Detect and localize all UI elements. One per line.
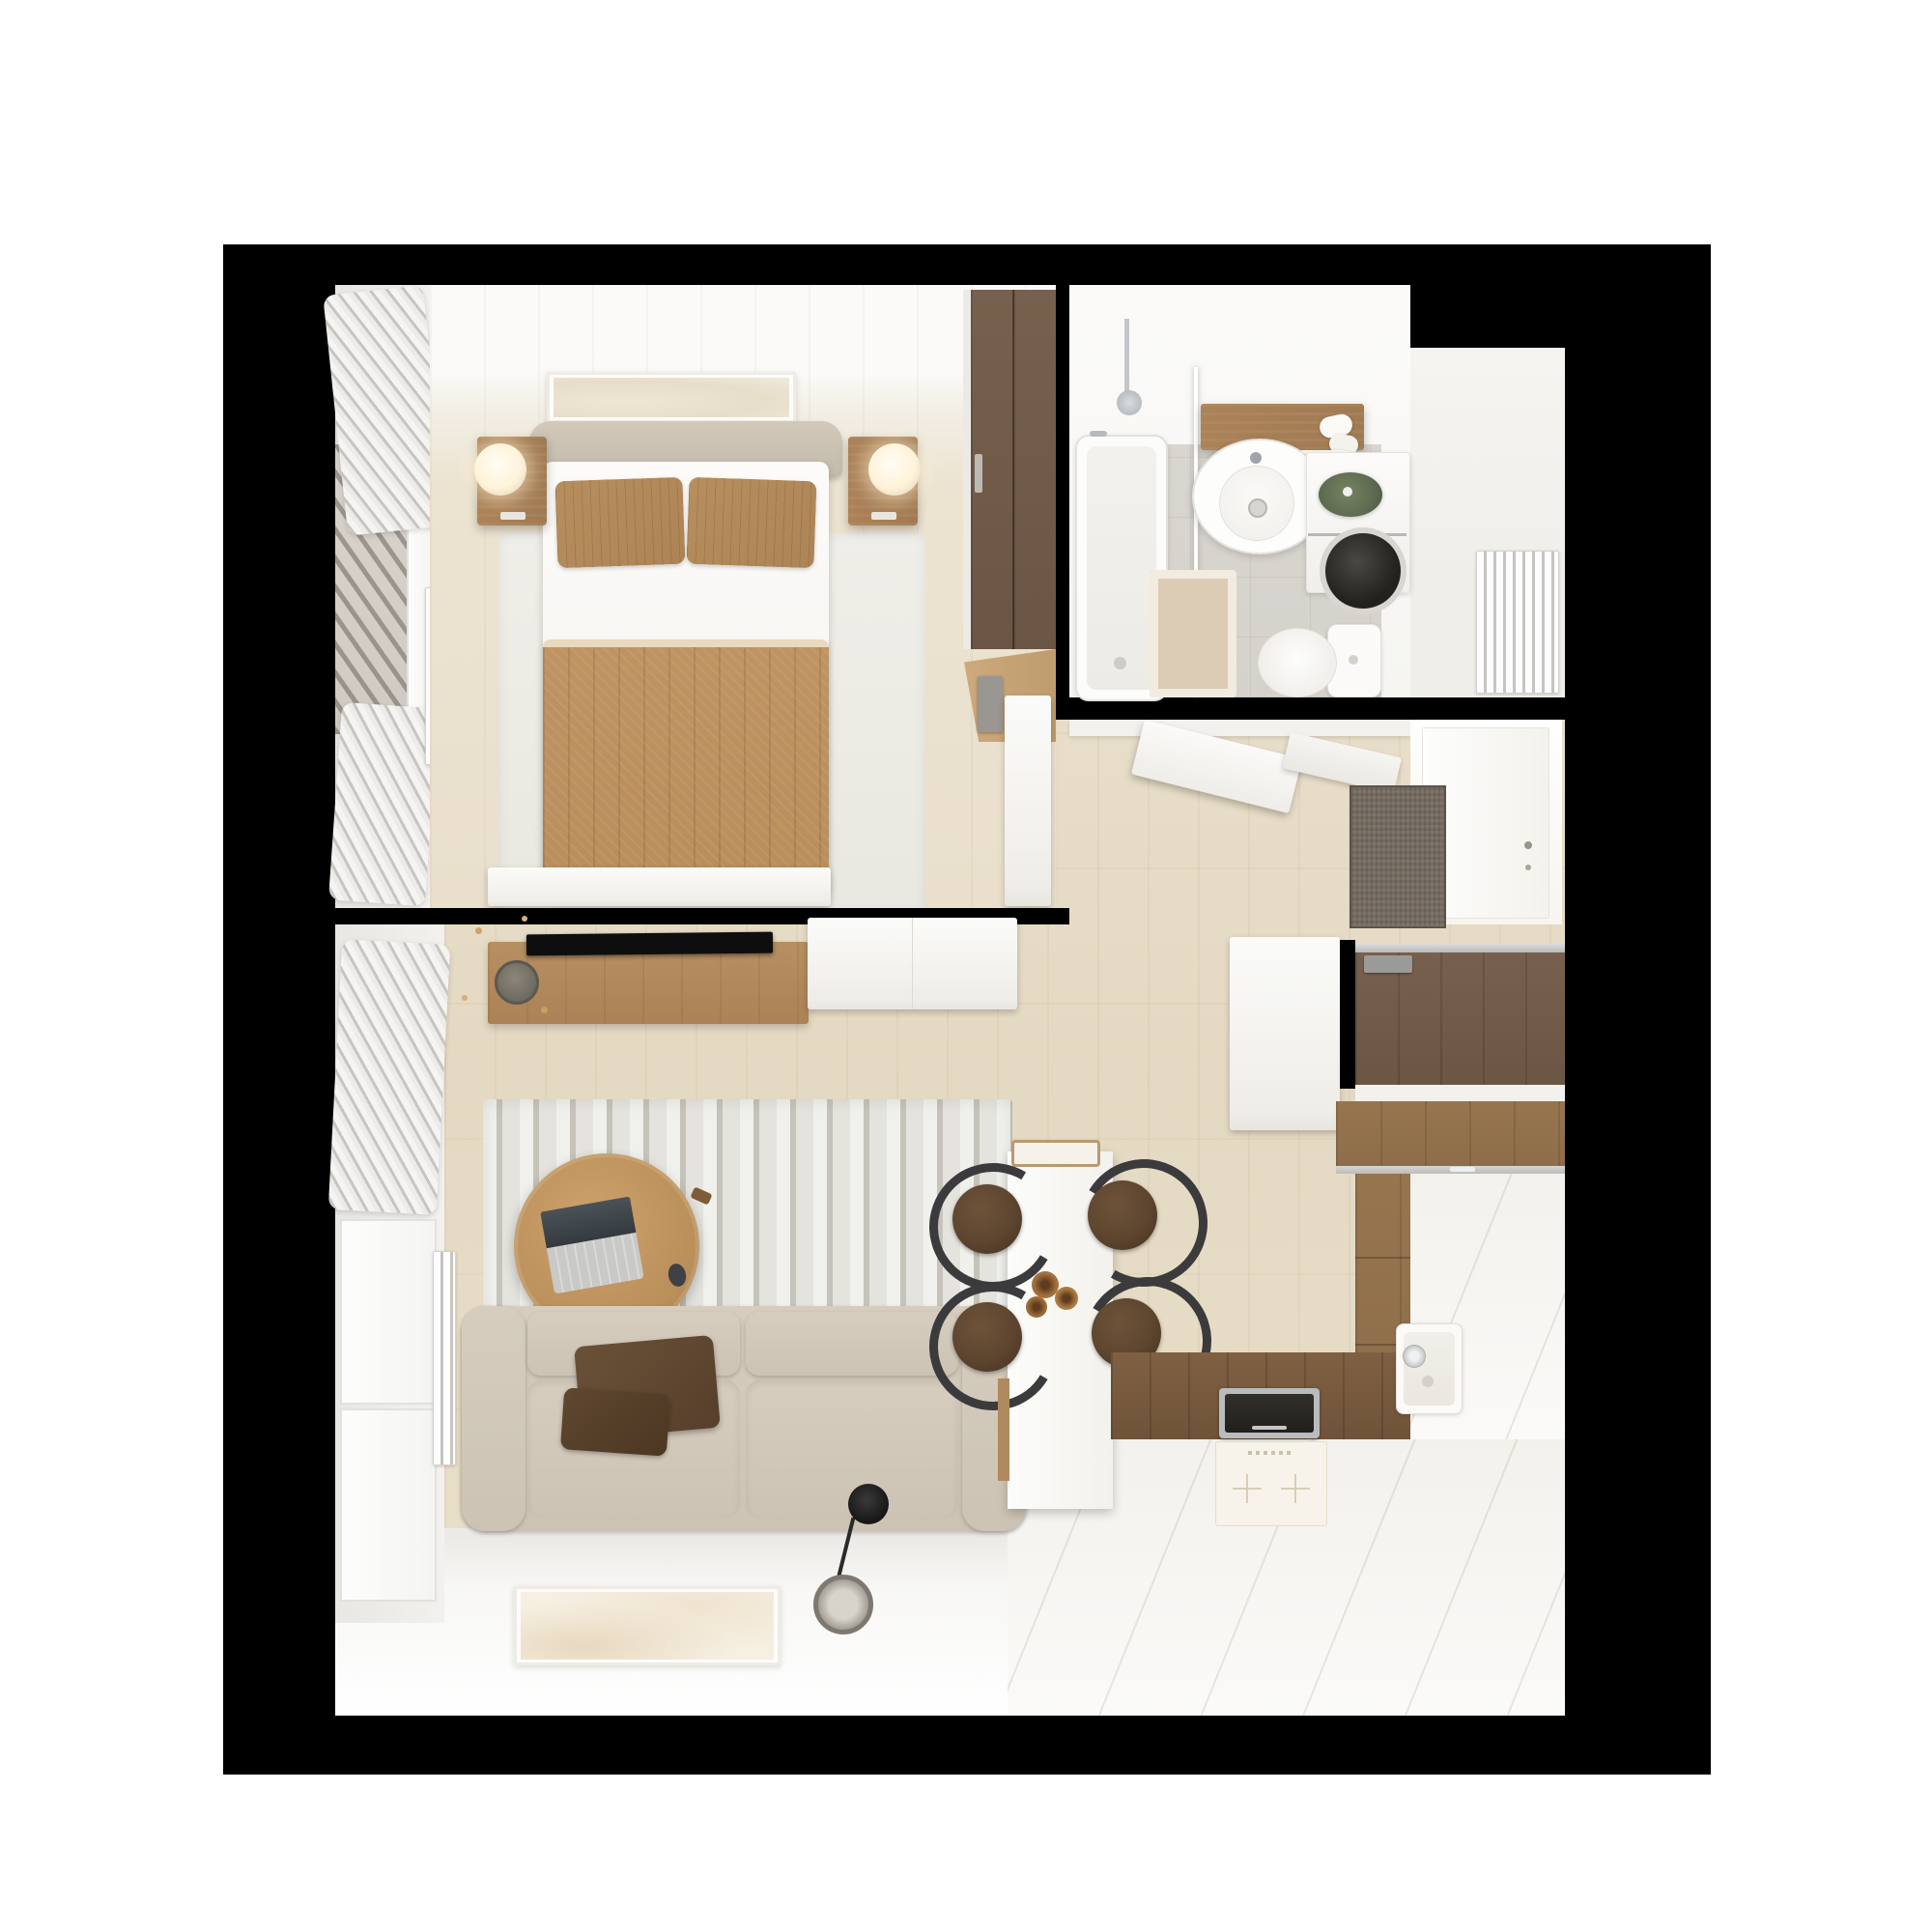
washer-door <box>1320 527 1406 614</box>
shower-tap <box>1090 431 1107 437</box>
leaning-artwork-image <box>521 1592 774 1660</box>
shower-head <box>1117 390 1142 415</box>
hall-door-frame-band <box>1069 720 1410 736</box>
vase <box>495 960 539 1005</box>
living-sideboard <box>808 918 1017 1009</box>
bedroom-wall-art <box>547 372 796 423</box>
wardrobe-shelf-handle <box>978 676 1003 732</box>
hob-controls <box>1252 1426 1287 1430</box>
entry-wardrobe <box>1355 952 1565 1085</box>
kitchen-worktop-left-strip <box>998 1378 1009 1481</box>
chair-left-bottom <box>952 1302 1022 1372</box>
serving-tray <box>1011 1140 1100 1167</box>
bedroom-low-dresser <box>488 867 831 906</box>
vase-sprig-2 <box>522 916 527 922</box>
bed-duvet <box>543 639 829 895</box>
wardrobe-handle <box>975 454 982 493</box>
cooktop-label-dots <box>1248 1451 1294 1455</box>
cooktop-cross-2 <box>1281 1474 1310 1503</box>
living-radiator <box>433 1251 456 1465</box>
sink-tap <box>1250 452 1262 464</box>
vase-sprig-3 <box>541 1007 548 1013</box>
living-window-glass-1 <box>340 1219 437 1405</box>
bed-pillow-right <box>686 477 816 569</box>
throw-pillow <box>560 1387 670 1457</box>
bedroom-curtain-bottom <box>328 702 439 906</box>
bathtub-basin <box>1087 446 1156 690</box>
sphere-lamp-right <box>868 443 921 496</box>
sphere-lamp-left <box>474 443 526 496</box>
kitchen-faucet <box>1403 1345 1426 1368</box>
bedroom-wall-art-image <box>554 378 789 417</box>
sink-drain <box>1248 498 1267 518</box>
entry-wardrobe-gap <box>1355 1085 1565 1101</box>
induction-hob <box>1219 1388 1320 1438</box>
tall-cabinet-seam-1 <box>1355 1257 1410 1259</box>
cooktop-front-panel <box>1215 1441 1327 1526</box>
bath-mat <box>1150 570 1236 697</box>
front-door-lock <box>1525 865 1531 870</box>
bedroom-open-door-leaf <box>1005 696 1051 906</box>
sink-basin <box>1404 1332 1455 1406</box>
bathtub-drain <box>1114 657 1126 669</box>
sofa-back-cushion-right <box>746 1312 958 1376</box>
chair-left-top <box>952 1184 1022 1254</box>
toilet-bowl <box>1258 628 1337 697</box>
floor-plan-screenshot <box>0 0 1932 1932</box>
sliding-panel <box>1230 937 1340 1130</box>
floor-lamp-head <box>848 1484 889 1524</box>
laptop <box>540 1196 644 1293</box>
doormat <box>1350 785 1446 928</box>
kitchen-drain <box>1422 1376 1434 1387</box>
kitchen-rail-chrome <box>1450 1167 1475 1172</box>
niche-radiator <box>1476 551 1559 694</box>
nightstand-left-handle <box>500 512 526 520</box>
dried-flower-2 <box>1055 1287 1078 1310</box>
bedroom-wardrobe <box>971 290 1056 649</box>
cooktop-cross-1 <box>1233 1474 1262 1503</box>
nightstand-right-handle <box>871 512 896 520</box>
door-closer <box>1364 955 1412 973</box>
kitchen-sink <box>1396 1323 1463 1414</box>
leaning-artwork <box>514 1586 781 1665</box>
tv <box>526 932 773 956</box>
wardrobe-seam <box>1012 290 1014 649</box>
sofa-arm-left <box>462 1306 526 1531</box>
toilet-button <box>1349 655 1358 665</box>
front-door-handle <box>1524 841 1532 849</box>
sideboard-seam <box>912 918 913 1009</box>
wall-entry-stub <box>1340 940 1355 1089</box>
entry-wardrobe-rail <box>1355 944 1565 952</box>
floor-lamp-base <box>813 1575 873 1634</box>
plant-pot-dot <box>1343 487 1352 497</box>
wall-bedroom-bathroom <box>1056 285 1069 697</box>
chair-right-top <box>1088 1180 1157 1250</box>
vase-sprig-1 <box>475 927 482 934</box>
kitchen-upper-cabinet-slab <box>1336 1101 1565 1174</box>
bed-pillow-left <box>554 477 685 569</box>
vase-sprig-4 <box>462 995 468 1001</box>
living-window-glass-2 <box>340 1408 437 1602</box>
living-curtain <box>328 939 451 1214</box>
